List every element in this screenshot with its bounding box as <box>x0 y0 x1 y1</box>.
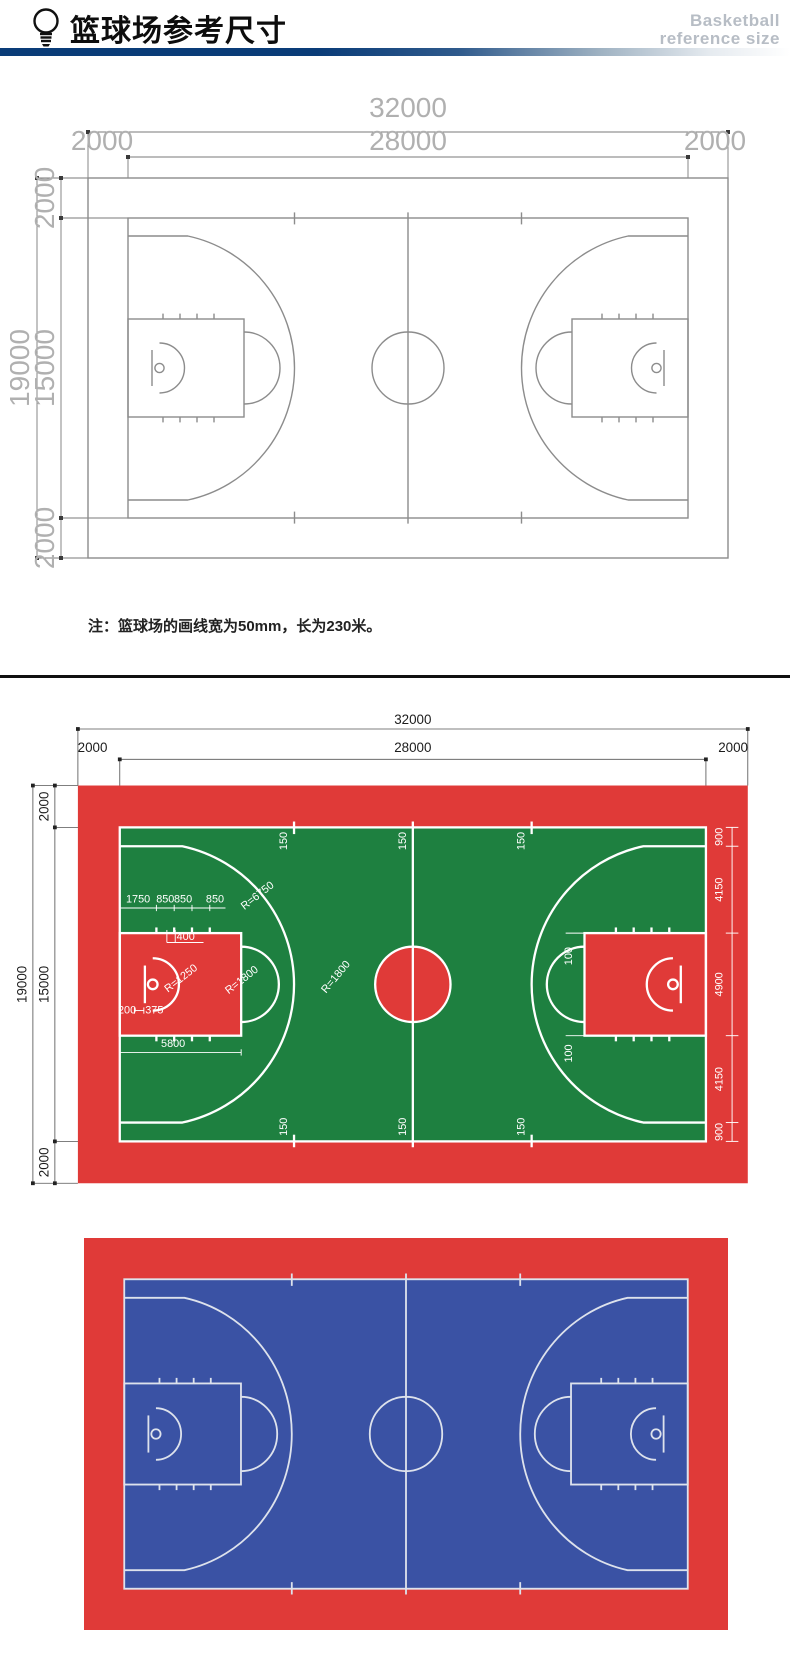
lane-seg-850c: 850 <box>206 894 224 906</box>
d1-dimension-lines <box>37 132 728 558</box>
d1-dimension-labels: 32000 28000 2000 2000 19000 2000 15000 2… <box>10 92 746 569</box>
d1-dimension-dots <box>35 130 730 560</box>
diagram-colored-dimensioned: 32000 28000 2000 2000 19000 2000 15000 2… <box>13 708 775 1221</box>
d2-bottom-margin-label: 2000 <box>37 1147 52 1177</box>
d2-top-margin-label: 2000 <box>37 792 52 822</box>
d2-court-width-label: 15000 <box>37 966 52 1003</box>
d2-right-margin-label: 2000 <box>718 740 748 755</box>
rim-offset-200: 200 <box>118 1005 136 1017</box>
d1-total-length-label: 32000 <box>369 92 447 123</box>
tick-bottom-3: 150 <box>516 1118 528 1136</box>
lane-seg-850a: 850 <box>156 894 174 906</box>
lightbulb-icon <box>28 6 64 48</box>
key-length-label: 5800 <box>161 1038 185 1050</box>
section-divider <box>0 675 790 678</box>
rim-offset-375: 375 <box>145 1005 163 1017</box>
subtitle-line2: reference size <box>660 30 780 48</box>
page: 篮球场参考尺寸 Basketball reference size 32000 … <box>0 0 790 1668</box>
right-seg-4150-bottom: 4150 <box>714 1067 726 1091</box>
right-seg-4900: 4900 <box>714 972 726 996</box>
tick-top-3: 150 <box>516 832 528 850</box>
d2-left-margin-label: 2000 <box>78 740 108 755</box>
diagram-blue-court <box>84 1238 728 1630</box>
d1-left-margin-label: 2000 <box>71 125 133 156</box>
page-title: 篮球场参考尺寸 <box>70 6 287 50</box>
tick-bottom-1: 150 <box>278 1118 290 1136</box>
d2-total-width-label: 19000 <box>15 966 30 1003</box>
d1-right-margin-label: 2000 <box>684 125 746 156</box>
tick-top-1: 150 <box>278 832 290 850</box>
page-subtitle: Basketball reference size <box>660 12 780 48</box>
right-seg-900-bottom: 900 <box>714 1123 726 1141</box>
tick-bottom-2: 150 <box>397 1118 409 1136</box>
header-gradient-bar <box>0 48 790 56</box>
right-seg-4150-top: 4150 <box>714 878 726 902</box>
d1-top-margin-label: 2000 <box>29 167 60 229</box>
diagram-line-drawing: 32000 28000 2000 2000 19000 2000 15000 2… <box>10 92 748 572</box>
d1-bottom-margin-label: 2000 <box>29 507 60 569</box>
lane-mark-top-label: 100 <box>563 947 575 965</box>
lane-mark-bottom-label: 100 <box>563 1044 575 1062</box>
lane-seg-1750: 1750 <box>126 894 150 906</box>
tick-top-2: 150 <box>397 832 409 850</box>
d2-right-key-fill <box>585 933 706 1036</box>
d1-court-width-label: 15000 <box>29 329 60 407</box>
d1-court-length-label: 28000 <box>369 125 447 156</box>
lane-seg-850b: 850 <box>174 894 192 906</box>
note-text: 注：篮球场的画线宽为50mm，长为230米。 <box>88 615 381 636</box>
d1-court-lines <box>128 212 688 523</box>
subtitle-line1: Basketball <box>660 12 780 30</box>
backboard-offset-label: 400 <box>177 931 195 943</box>
right-seg-900-top: 900 <box>714 828 726 846</box>
d2-total-length-label: 32000 <box>394 712 431 727</box>
d2-court-length-label: 28000 <box>394 740 431 755</box>
